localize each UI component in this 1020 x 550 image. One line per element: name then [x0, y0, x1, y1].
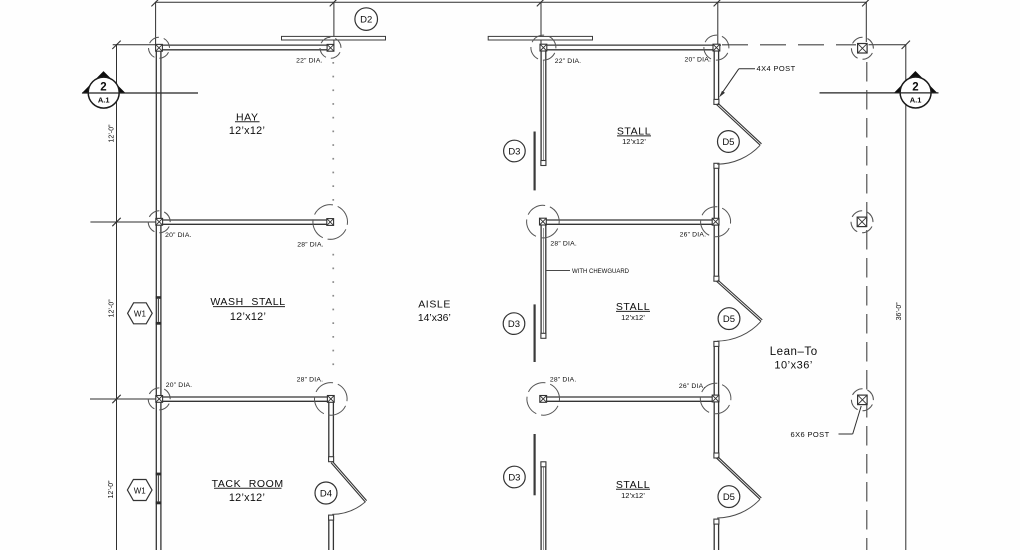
svg-text:22” DIA.: 22” DIA. [555, 58, 582, 65]
svg-text:28” DIA.: 28” DIA. [297, 376, 324, 383]
svg-text:6X6 POST: 6X6 POST [791, 430, 830, 439]
svg-text:22” DIA.: 22” DIA. [296, 58, 323, 65]
svg-text:WITH CHEWGUARD: WITH CHEWGUARD [572, 269, 630, 275]
svg-text:20” DIA.: 20” DIA. [685, 56, 712, 63]
svg-text:26” DIA.: 26” DIA. [680, 232, 707, 239]
svg-text:2: 2 [100, 81, 106, 93]
svg-text:A.1: A.1 [98, 96, 110, 105]
svg-text:28” DIA.: 28” DIA. [297, 241, 324, 248]
svg-text:12’-0”: 12’-0” [108, 299, 115, 318]
svg-text:W1: W1 [134, 310, 147, 319]
svg-text:28” DIA.: 28” DIA. [550, 376, 577, 383]
svg-text:AISLE: AISLE [418, 299, 451, 311]
svg-text:A.1: A.1 [910, 96, 922, 105]
svg-text:D5: D5 [723, 492, 735, 503]
svg-text:D3: D3 [508, 319, 520, 330]
svg-text:2: 2 [912, 81, 918, 93]
svg-text:D4: D4 [320, 488, 332, 499]
svg-text:20” DIA.: 20” DIA. [166, 382, 193, 389]
svg-text:12’-0”: 12’-0” [108, 480, 115, 499]
svg-text:28” DIA.: 28” DIA. [550, 240, 577, 247]
svg-text:D3: D3 [508, 146, 520, 157]
svg-text:D5: D5 [723, 314, 735, 325]
svg-text:36’-0”: 36’-0” [896, 302, 903, 321]
svg-text:WASH STALL: WASH STALL [210, 296, 285, 308]
svg-text:D3: D3 [508, 472, 520, 483]
svg-text:26” DIA.: 26” DIA. [679, 383, 706, 390]
svg-text:20” DIA.: 20” DIA. [165, 232, 192, 239]
svg-text:10’x36’: 10’x36’ [774, 360, 812, 372]
svg-text:12’-0”: 12’-0” [108, 124, 115, 143]
svg-text:12’x12’: 12’x12’ [622, 137, 646, 146]
svg-text:12’x12’: 12’x12’ [621, 491, 645, 500]
svg-text:14’x36’: 14’x36’ [418, 313, 451, 324]
svg-text:D5: D5 [722, 137, 734, 148]
svg-text:12’x12’: 12’x12’ [229, 492, 265, 504]
svg-text:W1: W1 [134, 486, 147, 495]
svg-text:Lean–To: Lean–To [770, 346, 818, 358]
svg-text:4X4 POST: 4X4 POST [757, 64, 796, 73]
svg-text:12’x12’: 12’x12’ [229, 125, 265, 137]
svg-text:D2: D2 [360, 15, 372, 26]
svg-text:12’x12’: 12’x12’ [230, 311, 266, 323]
svg-text:12’x12’: 12’x12’ [621, 313, 645, 322]
